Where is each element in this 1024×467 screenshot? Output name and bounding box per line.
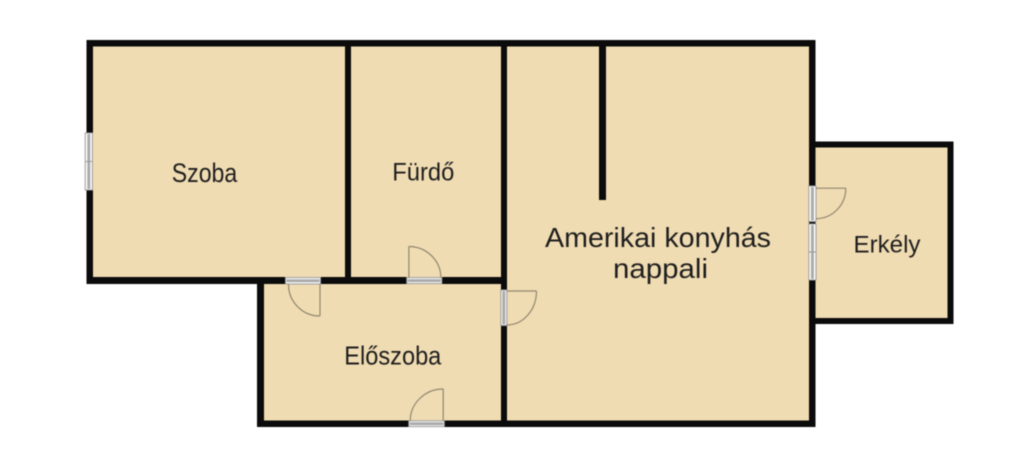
svg-text:Erkély: Erkély xyxy=(854,232,921,259)
svg-text:Fürdő: Fürdő xyxy=(392,159,454,187)
svg-text:Előszoba: Előszoba xyxy=(344,341,441,371)
svg-text:Amerikai konyhás: Amerikai konyhás xyxy=(545,222,771,253)
svg-text:nappali: nappali xyxy=(613,253,708,284)
svg-text:Szoba: Szoba xyxy=(172,158,238,188)
